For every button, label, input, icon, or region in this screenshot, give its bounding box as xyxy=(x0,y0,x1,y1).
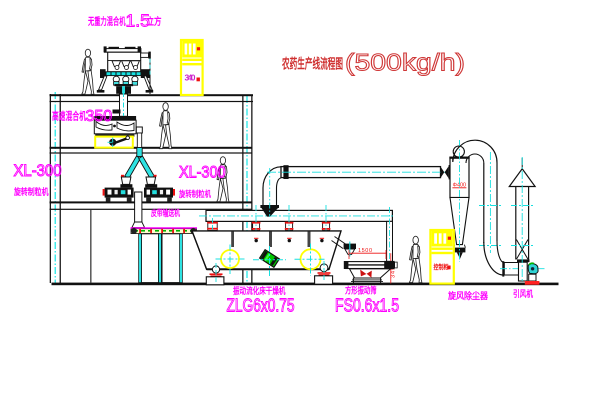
svg-text:(500kg/h): (500kg/h) xyxy=(345,50,465,77)
svg-text:旋风除尘器: 旋风除尘器 xyxy=(447,290,489,301)
svg-text:FS0.6x1.5: FS0.6x1.5 xyxy=(335,296,399,316)
svg-text:农药生产线流程图: 农药生产线流程图 xyxy=(281,56,343,72)
svg-text:皮带输送机: 皮带输送机 xyxy=(150,208,180,218)
svg-text:XL-300: XL-300 xyxy=(14,161,62,180)
svg-text:振动流化床干燥机: 振动流化床干燥机 xyxy=(233,285,286,296)
svg-text:1500: 1500 xyxy=(358,248,372,254)
svg-text:高速混合机: 高速混合机 xyxy=(52,110,86,123)
svg-text:350: 350 xyxy=(86,108,113,125)
svg-text:引风机: 引风机 xyxy=(513,288,533,299)
svg-text:旋转制粒机: 旋转制粒机 xyxy=(178,189,211,199)
svg-text:ZLG6x0.75: ZLG6x0.75 xyxy=(227,296,295,316)
svg-text:控制柜: 控制柜 xyxy=(434,262,449,271)
svg-text:方形振动筛: 方形振动筛 xyxy=(345,285,377,296)
svg-text:无重力混合机: 无重力混合机 xyxy=(87,15,125,28)
svg-text:旋转制粒机: 旋转制粒机 xyxy=(13,186,48,197)
svg-text:340: 340 xyxy=(185,73,196,83)
svg-text:XL-300: XL-300 xyxy=(179,163,226,182)
svg-text:立方: 立方 xyxy=(147,15,162,28)
